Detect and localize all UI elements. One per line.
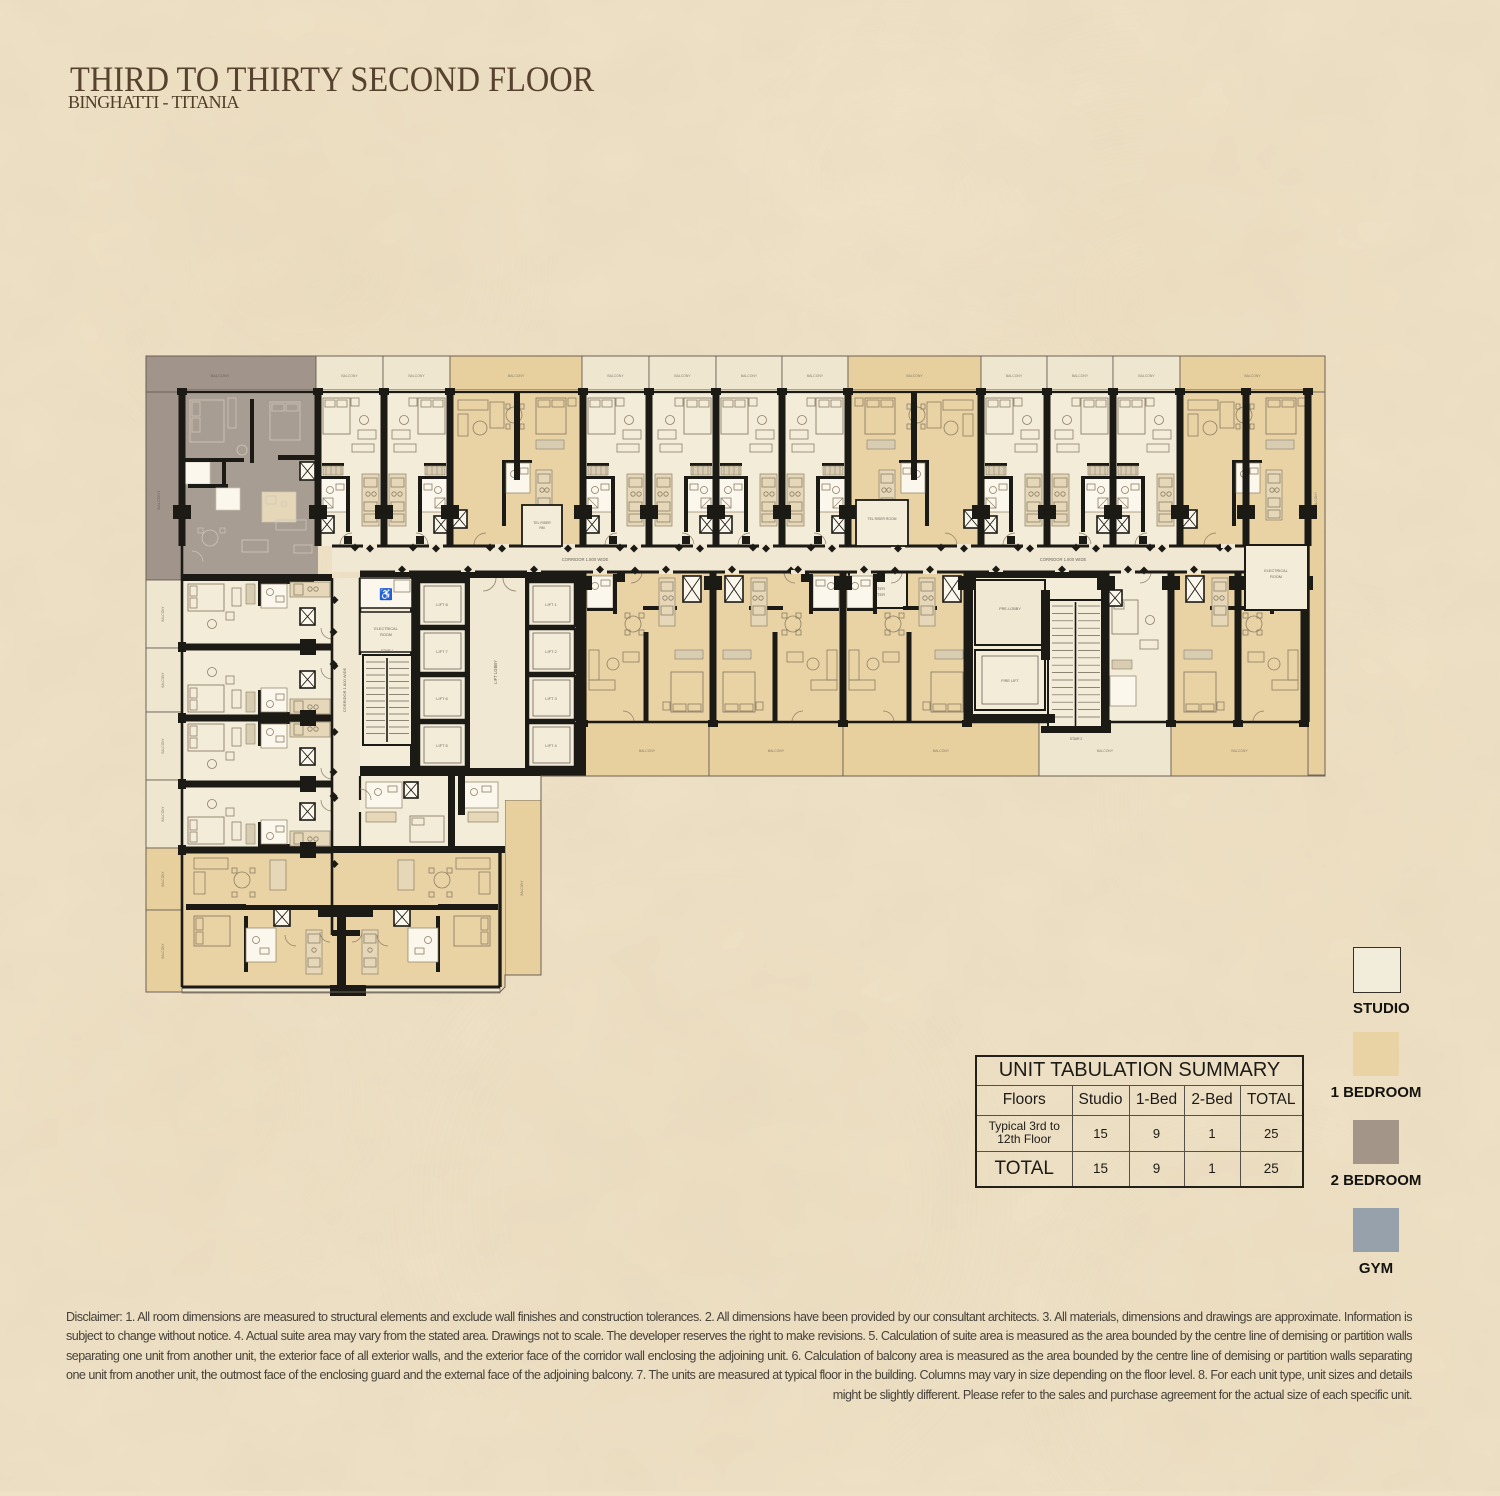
svg-text:BALCONY: BALCONY xyxy=(906,374,923,378)
svg-text:BALCONY: BALCONY xyxy=(674,374,691,378)
svg-text:LIFT 1: LIFT 1 xyxy=(545,602,557,607)
svg-text:ELECTRICAL: ELECTRICAL xyxy=(374,627,397,631)
svg-text:ROOM: ROOM xyxy=(380,633,392,637)
svg-text:BALCONY: BALCONY xyxy=(1244,374,1261,378)
svg-text:BALCONY: BALCONY xyxy=(1072,374,1089,378)
svg-text:BALCONY: BALCONY xyxy=(408,374,425,378)
svg-text:LIFT LOBBY: LIFT LOBBY xyxy=(493,660,498,684)
svg-text:BALCONY: BALCONY xyxy=(807,374,824,378)
svg-text:BALCONY: BALCONY xyxy=(1231,749,1248,753)
svg-text:BALCONY: BALCONY xyxy=(161,806,165,822)
svg-text:TEL RISER: TEL RISER xyxy=(533,521,551,525)
svg-text:BALCONY: BALCONY xyxy=(1006,374,1023,378)
svg-text:STAIR 2: STAIR 2 xyxy=(1070,737,1083,741)
svg-text:BALCONY: BALCONY xyxy=(741,374,758,378)
svg-text:BALCONY: BALCONY xyxy=(161,943,165,959)
svg-text:LIFT 8: LIFT 8 xyxy=(436,602,448,607)
svg-text:BALCONY: BALCONY xyxy=(161,606,165,622)
svg-text:LIFT 6: LIFT 6 xyxy=(436,696,448,701)
svg-text:LIFT 2: LIFT 2 xyxy=(545,649,557,654)
svg-text:RM: RM xyxy=(539,526,544,530)
svg-text:BALCONY: BALCONY xyxy=(210,373,229,378)
svg-text:BALCONY: BALCONY xyxy=(161,871,165,887)
svg-text:ROOM: ROOM xyxy=(1270,575,1282,579)
svg-text:ELECTRICAL: ELECTRICAL xyxy=(1264,569,1287,573)
svg-text:CORRIDOR 1.800 WIDE: CORRIDOR 1.800 WIDE xyxy=(562,557,609,562)
svg-text:LIFT 5: LIFT 5 xyxy=(436,743,448,748)
svg-text:BALCONY: BALCONY xyxy=(156,490,161,509)
svg-text:CORRIDOR 1.800 WIDE: CORRIDOR 1.800 WIDE xyxy=(1040,557,1087,562)
svg-text:BALCONY: BALCONY xyxy=(639,749,656,753)
svg-text:BALCONY: BALCONY xyxy=(520,880,524,896)
svg-text:BALCONY: BALCONY xyxy=(161,672,165,688)
svg-text:PRE-LOBBY: PRE-LOBBY xyxy=(999,607,1021,611)
svg-text:BALCONY: BALCONY xyxy=(1097,749,1114,753)
svg-text:LIFT 4: LIFT 4 xyxy=(545,743,557,748)
svg-text:BALCONY: BALCONY xyxy=(1138,374,1155,378)
svg-text:BALCONY: BALCONY xyxy=(161,738,165,754)
svg-text:♿: ♿ xyxy=(379,588,393,601)
svg-text:LIFT 3: LIFT 3 xyxy=(545,696,557,701)
svg-text:BALCONY: BALCONY xyxy=(508,374,525,378)
svg-text:BALCONY: BALCONY xyxy=(341,374,358,378)
svg-text:FIRE LIFT: FIRE LIFT xyxy=(1001,679,1019,683)
svg-text:BALCONY: BALCONY xyxy=(768,749,785,753)
svg-text:STAIR 1: STAIR 1 xyxy=(381,649,394,653)
svg-text:LIFT 7: LIFT 7 xyxy=(436,649,448,654)
svg-text:CORRIDOR 1.800 WIDE: CORRIDOR 1.800 WIDE xyxy=(342,667,347,712)
svg-text:BALCONY: BALCONY xyxy=(607,374,624,378)
svg-text:TEL RISER ROOM: TEL RISER ROOM xyxy=(868,517,897,521)
svg-text:BALCONY: BALCONY xyxy=(933,749,950,753)
